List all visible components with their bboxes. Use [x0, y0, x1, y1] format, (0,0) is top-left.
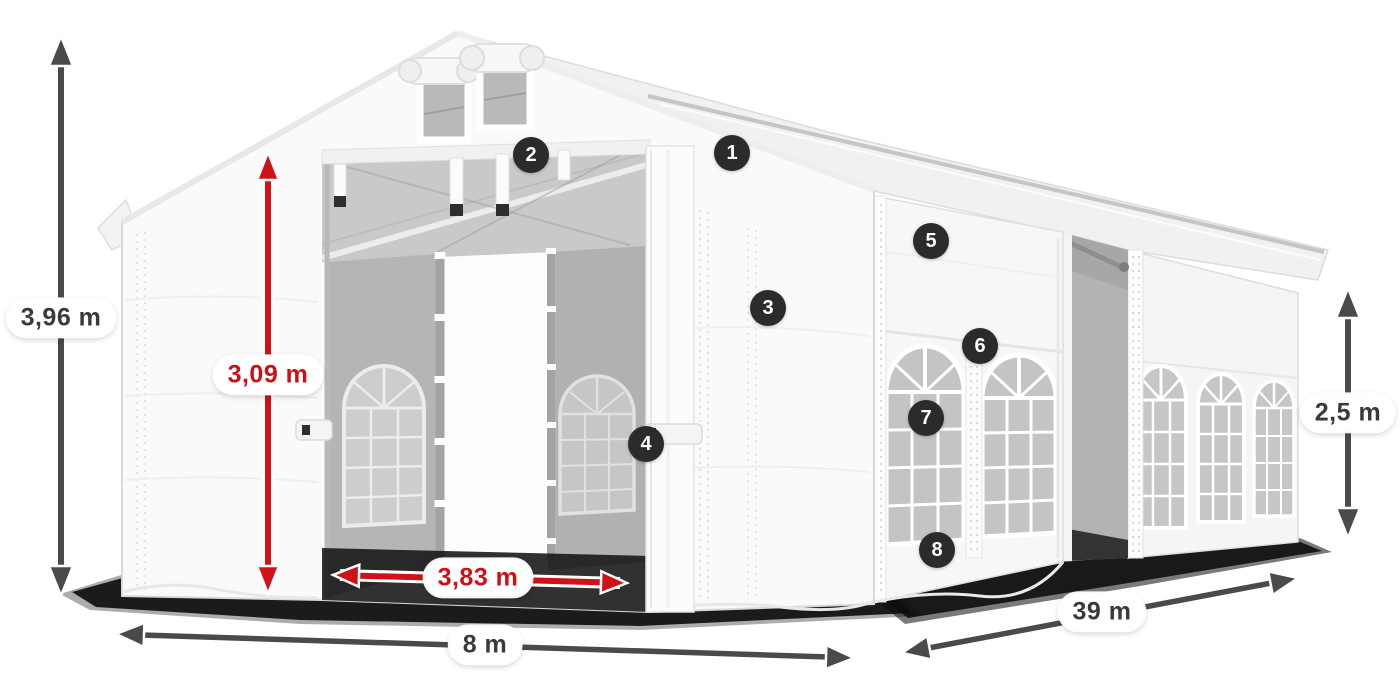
arched-window	[982, 355, 1056, 537]
side-entrance-gap	[1063, 233, 1129, 561]
callout-marker-3[interactable]: 3	[750, 290, 786, 326]
callout-marker-7[interactable]: 7	[908, 400, 944, 436]
arched-window	[886, 346, 964, 545]
callout-marker-4[interactable]: 4	[628, 426, 664, 462]
dimension-label-entrance-height: 3,09 m	[215, 356, 322, 393]
arched-window	[1254, 381, 1294, 516]
side-wall-front-section	[868, 196, 1063, 602]
gable-vent-windows	[399, 44, 544, 140]
dimension-label-length: 39 m	[1060, 593, 1145, 630]
tent-illustration	[0, 0, 1400, 700]
dimension-label-ground-width: 8 m	[450, 626, 521, 663]
callout-marker-2[interactable]: 2	[513, 137, 549, 173]
side-wall-back-section	[1128, 250, 1298, 558]
arched-window	[1198, 374, 1244, 522]
tent-interior	[322, 140, 650, 612]
callout-marker-5[interactable]: 5	[913, 223, 949, 259]
dimension-label-side-height: 2,5 m	[1302, 394, 1394, 431]
dimension-label-entrance-width: 3,83 m	[425, 559, 532, 596]
dimension-label-total-height: 3,96 m	[8, 299, 115, 336]
interior-window	[560, 376, 634, 514]
callout-marker-1[interactable]: 1	[714, 135, 750, 171]
callout-marker-8[interactable]: 8	[919, 532, 955, 568]
tent-dimension-diagram: 3,96 m 3,09 m 3,83 m 8 m 39 m 2,5 m 1 2 …	[0, 0, 1400, 700]
interior-window	[344, 366, 424, 526]
callout-marker-6[interactable]: 6	[962, 328, 998, 364]
